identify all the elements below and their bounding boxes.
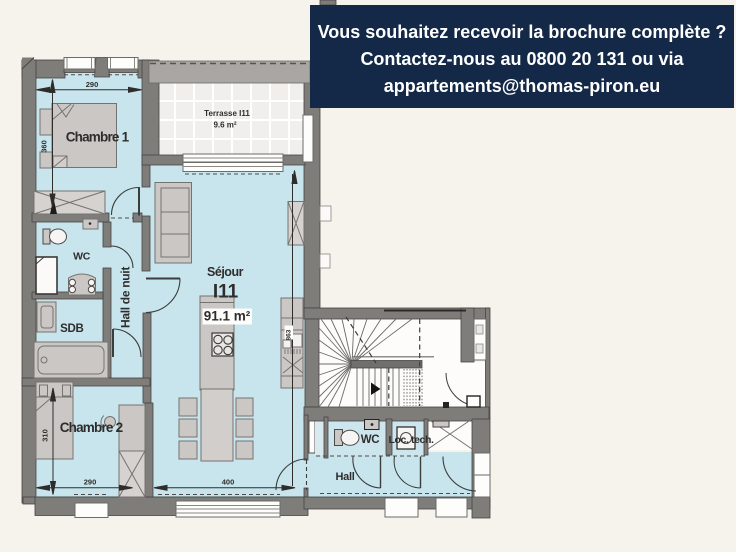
svg-text:WC: WC [73, 251, 91, 263]
svg-text:Loc. tech.: Loc. tech. [388, 434, 433, 446]
svg-text:Séjour: Séjour [207, 265, 244, 279]
svg-text:9.6 m²: 9.6 m² [213, 121, 236, 130]
svg-text:290: 290 [86, 80, 99, 89]
svg-text:Hall: Hall [336, 471, 355, 483]
svg-text:Hall de nuit: Hall de nuit [119, 267, 133, 328]
svg-text:91.1 m²: 91.1 m² [204, 309, 251, 324]
svg-text:360: 360 [40, 140, 49, 153]
svg-text:863: 863 [286, 329, 293, 340]
svg-text:290: 290 [84, 478, 97, 487]
svg-text:I11: I11 [213, 282, 239, 303]
svg-text:Terrasse I11: Terrasse I11 [204, 109, 250, 118]
svg-text:400: 400 [222, 478, 235, 487]
svg-text:310: 310 [41, 429, 50, 442]
svg-text:SDB: SDB [60, 323, 83, 335]
svg-text:WC: WC [361, 434, 380, 446]
svg-text:Chambre 1: Chambre 1 [66, 130, 130, 145]
svg-text:Chambre 2: Chambre 2 [60, 420, 123, 435]
